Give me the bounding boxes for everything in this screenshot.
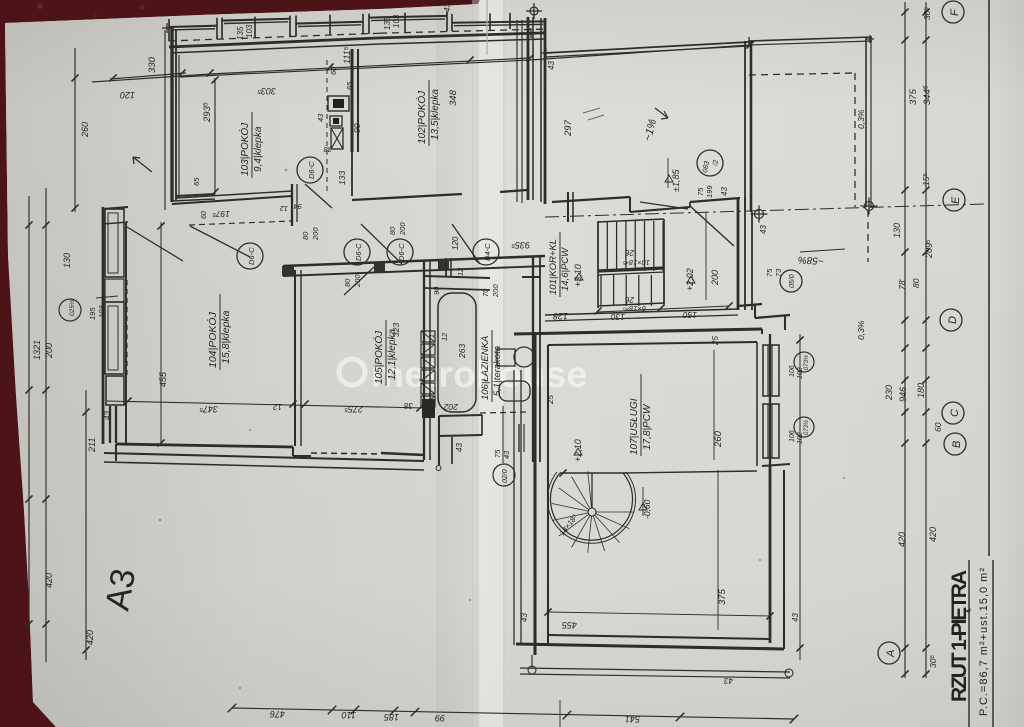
svg-text:102|POKÓJ: 102|POKÓJ: [415, 90, 428, 144]
svg-text:B: B: [951, 441, 963, 448]
svg-text:A: A: [885, 650, 897, 658]
svg-text:43: 43: [724, 676, 733, 685]
svg-text:130: 130: [62, 253, 72, 268]
svg-text:RZUT 1-PIĘTRA: RZUT 1-PIĘTRA: [948, 570, 971, 702]
svg-text:94: 94: [294, 202, 302, 211]
svg-text:101|KOR+KL: 101|KOR+KL: [548, 239, 559, 295]
svg-text:12: 12: [273, 402, 282, 411]
svg-text:455: 455: [158, 371, 168, 387]
svg-text:263: 263: [457, 344, 467, 359]
svg-text:260: 260: [80, 122, 90, 138]
svg-text:26: 26: [625, 248, 635, 257]
svg-text:1: 1: [429, 334, 436, 338]
svg-text:D4-C: D4-C: [483, 243, 492, 261]
svg-text:D6-C: D6-C: [354, 243, 363, 261]
svg-text:75: 75: [696, 187, 705, 196]
svg-text:10×18⁴⁵: 10×18⁴⁵: [623, 258, 650, 267]
svg-text:30⁵: 30⁵: [928, 655, 938, 668]
svg-text:103: 103: [245, 24, 254, 38]
svg-text:43: 43: [455, 443, 464, 452]
svg-text:38: 38: [404, 401, 413, 410]
svg-text:275⁵: 275⁵: [344, 404, 364, 414]
svg-text:~58%: ~58%: [798, 254, 825, 266]
svg-text:297: 297: [563, 119, 574, 137]
svg-text:43: 43: [443, 3, 452, 12]
svg-text:73: 73: [774, 268, 783, 277]
svg-text:195: 195: [88, 307, 97, 320]
svg-text:420: 420: [928, 527, 938, 542]
svg-text:106: 106: [789, 365, 796, 377]
svg-text:12: 12: [440, 332, 449, 341]
svg-text:43: 43: [791, 613, 800, 622]
svg-text:344⁵: 344⁵: [922, 85, 933, 105]
svg-text:9,4|klepka: 9,4|klepka: [253, 126, 264, 172]
svg-text:347⁵: 347⁵: [199, 404, 218, 414]
svg-text:P.C.=86,7 m²+ust.15,0 m²: P.C.=86,7 m²+ust.15,0 m²: [978, 568, 990, 716]
svg-text:455: 455: [561, 620, 577, 630]
svg-text:80: 80: [911, 278, 921, 288]
svg-text:185: 185: [383, 712, 399, 722]
svg-text:135: 135: [236, 26, 245, 40]
svg-text:D6-C: D6-C: [247, 247, 256, 265]
svg-text:80: 80: [301, 231, 310, 240]
svg-text:C: C: [949, 409, 961, 417]
svg-text:30⁵: 30⁵: [922, 7, 932, 20]
svg-text:12: 12: [456, 267, 465, 276]
svg-text:420: 420: [85, 630, 95, 645]
svg-text:D6-C: D6-C: [307, 161, 316, 179]
svg-text:15,8|klepka: 15,8|klepka: [220, 310, 232, 364]
svg-text:111⁵: 111⁵: [342, 46, 352, 64]
svg-text:60: 60: [933, 422, 943, 432]
svg-text:073½: 073½: [803, 420, 810, 435]
svg-text:293⁵: 293⁵: [202, 102, 213, 123]
svg-text:110: 110: [342, 710, 356, 720]
svg-text:43: 43: [103, 411, 112, 420]
svg-text:43: 43: [720, 187, 729, 196]
svg-text:90: 90: [352, 123, 362, 133]
svg-text:375: 375: [717, 588, 728, 605]
svg-text:43: 43: [520, 613, 529, 622]
svg-text:+2,10: +2,10: [573, 439, 583, 462]
svg-text:200: 200: [353, 274, 362, 288]
svg-text:A3: A3: [98, 566, 143, 614]
svg-text:323: 323: [391, 323, 401, 337]
svg-text:80: 80: [388, 226, 397, 235]
svg-text:230: 230: [884, 385, 894, 401]
svg-text:43: 43: [316, 113, 325, 122]
svg-text:935⁵: 935⁵: [511, 240, 530, 250]
svg-text:15⁵: 15⁵: [921, 173, 931, 186]
svg-text:348: 348: [448, 89, 459, 106]
svg-text:13,5|klepka: 13,5|klepka: [430, 89, 441, 140]
svg-text:D: D: [947, 316, 959, 324]
svg-text:78: 78: [897, 280, 907, 290]
svg-text:5,1|terakota: 5,1|terakota: [492, 346, 503, 396]
svg-text:43: 43: [547, 61, 556, 70]
svg-text:025½: 025½: [68, 299, 76, 316]
svg-text:E: E: [950, 196, 962, 204]
svg-text:99: 99: [435, 713, 445, 723]
svg-text:103: 103: [97, 305, 106, 318]
svg-text:541: 541: [625, 714, 640, 724]
svg-text:103: 103: [392, 14, 401, 28]
svg-text:180: 180: [916, 383, 926, 398]
svg-text:1321: 1321: [32, 340, 42, 360]
svg-text:128: 128: [553, 311, 568, 321]
svg-text:90: 90: [432, 286, 441, 295]
svg-text:150: 150: [683, 310, 697, 320]
svg-text:200: 200: [491, 284, 500, 298]
svg-text:106|ŁAZIENKA: 106|ŁAZIENKA: [480, 336, 491, 400]
svg-text:26: 26: [625, 295, 635, 304]
svg-text:073½: 073½: [803, 355, 810, 370]
svg-text:420: 420: [44, 573, 54, 588]
svg-text:120: 120: [120, 90, 135, 100]
svg-text:130: 130: [892, 223, 902, 238]
svg-text:211: 211: [87, 438, 97, 453]
svg-text:17,8|PCW: 17,8|PCW: [642, 403, 653, 450]
svg-text:43: 43: [759, 225, 768, 234]
svg-text:60: 60: [201, 211, 208, 219]
svg-text:375: 375: [908, 88, 919, 105]
svg-text:120: 120: [451, 236, 460, 250]
svg-text:200: 200: [710, 270, 720, 286]
svg-text:420: 420: [897, 532, 907, 547]
svg-text:199: 199: [705, 185, 714, 198]
svg-text:104|POKÓJ: 104|POKÓJ: [206, 311, 219, 368]
svg-text:197⁵: 197⁵: [212, 209, 230, 219]
svg-text:476: 476: [270, 709, 285, 719]
svg-text:80: 80: [343, 278, 352, 287]
svg-text:05/0: 05/0: [789, 274, 796, 288]
svg-text:12: 12: [279, 204, 288, 213]
svg-text:330: 330: [147, 56, 158, 73]
svg-text:105|POKÓJ: 105|POKÓJ: [372, 330, 385, 384]
svg-text:02/0: 02/0: [502, 469, 509, 483]
svg-text:/2: /2: [712, 159, 720, 167]
svg-text:0,3%: 0,3%: [856, 320, 866, 340]
svg-text:25: 25: [711, 336, 720, 346]
svg-text:65: 65: [192, 177, 201, 186]
svg-text:946: 946: [898, 387, 908, 402]
svg-text:200: 200: [44, 343, 54, 359]
svg-text:25: 25: [546, 395, 555, 405]
svg-text:200: 200: [398, 222, 407, 236]
svg-text:107|USŁUGI: 107|USŁUGI: [629, 398, 640, 455]
svg-text:133: 133: [337, 171, 347, 185]
svg-text:200: 200: [311, 227, 320, 241]
svg-text:0,3%: 0,3%: [856, 109, 866, 129]
svg-text:14,6|PCW: 14,6|PCW: [560, 247, 571, 291]
svg-text:60: 60: [329, 66, 338, 75]
svg-text:303⁵: 303⁵: [257, 86, 276, 96]
svg-text:65: 65: [345, 81, 354, 90]
svg-text:209⁵: 209⁵: [924, 239, 934, 259]
svg-text:D6-C: D6-C: [397, 243, 406, 261]
svg-text:260: 260: [713, 430, 724, 448]
svg-text:135: 135: [383, 16, 392, 30]
svg-text:75: 75: [765, 268, 774, 277]
svg-text:75: 75: [493, 449, 502, 458]
svg-text:106: 106: [789, 430, 796, 442]
svg-text:202: 202: [444, 402, 459, 412]
svg-text:103|POKÓJ: 103|POKÓJ: [238, 122, 251, 176]
